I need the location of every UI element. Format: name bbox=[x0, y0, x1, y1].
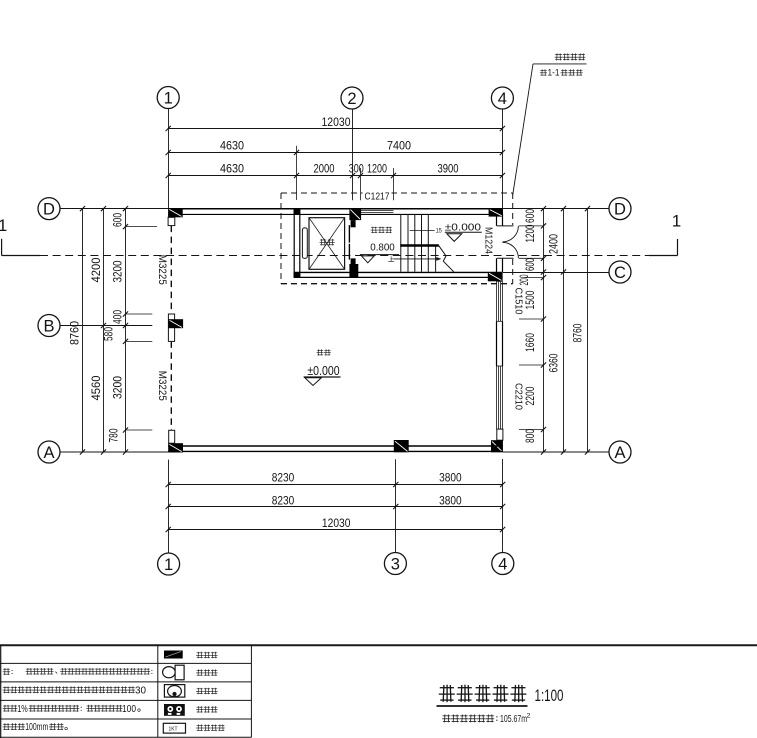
svg-text:2400: 2400 bbox=[547, 234, 561, 254]
svg-text:600: 600 bbox=[523, 209, 537, 223]
svg-text:1%: 1% bbox=[17, 704, 28, 715]
svg-text:12030: 12030 bbox=[322, 115, 351, 129]
svg-text:D: D bbox=[614, 201, 626, 219]
svg-text:1200: 1200 bbox=[523, 224, 537, 242]
svg-text:C2210: C2210 bbox=[513, 383, 525, 410]
svg-text:30: 30 bbox=[135, 684, 146, 696]
svg-text:400: 400 bbox=[111, 310, 125, 324]
svg-text:105.67m: 105.67m bbox=[500, 713, 527, 725]
svg-text:780: 780 bbox=[107, 428, 121, 442]
svg-text:4560: 4560 bbox=[89, 375, 103, 400]
svg-text:1: 1 bbox=[672, 212, 681, 231]
svg-text:3800: 3800 bbox=[439, 471, 462, 485]
svg-text:4630: 4630 bbox=[220, 162, 244, 176]
svg-text:4: 4 bbox=[498, 555, 507, 573]
svg-text:D: D bbox=[43, 201, 55, 219]
svg-text:1660: 1660 bbox=[523, 333, 537, 352]
svg-text:3800: 3800 bbox=[439, 493, 462, 507]
svg-text:B: B bbox=[43, 317, 54, 335]
svg-text:800: 800 bbox=[523, 429, 537, 443]
svg-text:1:100: 1:100 bbox=[535, 686, 564, 705]
svg-text:3900: 3900 bbox=[438, 162, 459, 176]
svg-text:12030: 12030 bbox=[322, 516, 351, 530]
svg-text:8760: 8760 bbox=[68, 321, 82, 345]
svg-text:A: A bbox=[43, 444, 54, 462]
svg-text:100: 100 bbox=[122, 704, 136, 715]
svg-text:M3225: M3225 bbox=[156, 255, 168, 285]
svg-text:4630: 4630 bbox=[220, 138, 244, 152]
svg-text:7400: 7400 bbox=[387, 138, 411, 152]
svg-text:6360: 6360 bbox=[547, 353, 561, 372]
svg-text:600: 600 bbox=[111, 213, 125, 227]
svg-text:±0.000: ±0.000 bbox=[445, 221, 481, 233]
svg-text:2000: 2000 bbox=[314, 162, 335, 176]
svg-text:3200: 3200 bbox=[111, 376, 125, 399]
svg-text:1200: 1200 bbox=[367, 162, 387, 176]
svg-text:C1510: C1510 bbox=[513, 288, 525, 315]
svg-text:580: 580 bbox=[102, 327, 116, 341]
svg-text:1KT: 1KT bbox=[169, 727, 179, 733]
svg-text:15: 15 bbox=[436, 228, 442, 235]
svg-text:600: 600 bbox=[523, 258, 537, 271]
svg-text:3: 3 bbox=[391, 555, 400, 573]
svg-text:8230: 8230 bbox=[272, 493, 295, 507]
svg-text:M3225: M3225 bbox=[156, 371, 168, 401]
svg-text:4: 4 bbox=[498, 90, 507, 108]
svg-text:4200: 4200 bbox=[89, 257, 103, 282]
svg-text:8230: 8230 bbox=[272, 471, 295, 485]
svg-text:1: 1 bbox=[0, 216, 7, 235]
svg-text:0.800: 0.800 bbox=[370, 242, 395, 253]
svg-text:A: A bbox=[614, 444, 625, 462]
svg-text:8760: 8760 bbox=[571, 323, 585, 342]
svg-text:1: 1 bbox=[164, 89, 173, 107]
svg-text:±0.000: ±0.000 bbox=[307, 363, 339, 378]
svg-text:200: 200 bbox=[517, 274, 531, 285]
svg-text:2: 2 bbox=[347, 90, 356, 108]
svg-text:C1217: C1217 bbox=[365, 191, 390, 203]
svg-text:100mm: 100mm bbox=[25, 722, 48, 733]
svg-text:M1224: M1224 bbox=[483, 227, 494, 254]
svg-text:C: C bbox=[614, 264, 626, 282]
svg-text:1: 1 bbox=[164, 556, 173, 574]
svg-text:1-1: 1-1 bbox=[548, 68, 560, 79]
svg-text:3200: 3200 bbox=[111, 260, 125, 282]
